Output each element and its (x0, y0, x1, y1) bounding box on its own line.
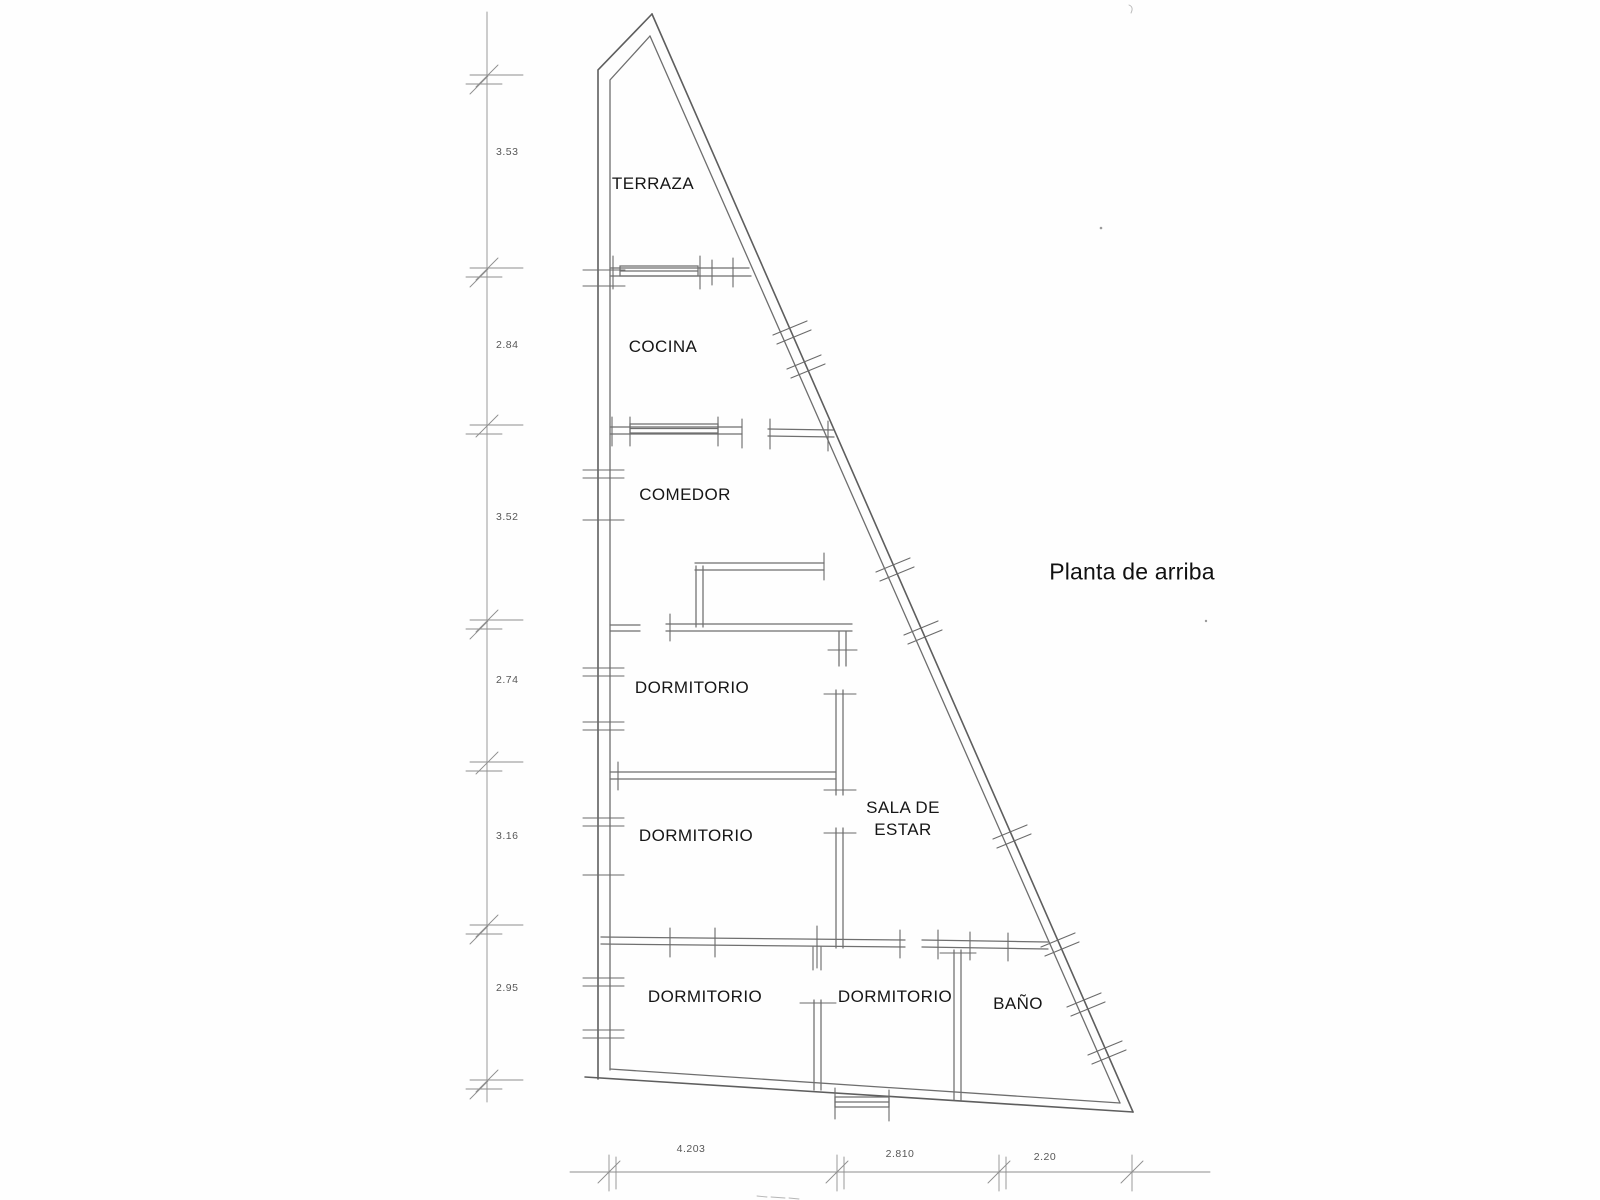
dimension-line-bottom (570, 1155, 1210, 1191)
dim-left-5: 3.16 (496, 830, 518, 842)
room-label-dormitorio-3: DORMITORIO (648, 987, 762, 1007)
room-label-dormitorio-4: DORMITORIO (838, 987, 952, 1007)
dim-left-4: 2.74 (496, 674, 518, 686)
plan-title: Planta de arriba (1049, 559, 1215, 586)
scan-artifacts (757, 5, 1207, 1199)
room-label-comedor: COMEDOR (639, 485, 731, 505)
floor-plan-drawing (0, 0, 1600, 1200)
room-label-cocina: COCINA (629, 337, 698, 357)
room-label-bano: BAÑO (993, 994, 1043, 1014)
dim-bottom-1: 4.203 (677, 1143, 706, 1155)
room-label-sala-de-estar: SALA DE ESTAR (847, 797, 959, 841)
dim-bottom-2: 2.810 (886, 1148, 915, 1160)
room-label-dormitorio-2: DORMITORIO (639, 826, 753, 846)
floor-plan-page: TERRAZA COCINA COMEDOR DORMITORIO SALA D… (0, 0, 1600, 1200)
dim-left-3: 3.52 (496, 511, 518, 523)
dimension-line-left (466, 12, 523, 1102)
room-label-dormitorio-1: DORMITORIO (635, 678, 749, 698)
dim-bottom-3: 2.20 (1034, 1151, 1056, 1163)
dim-left-1: 3.53 (496, 146, 518, 158)
room-label-terraza: TERRAZA (612, 174, 694, 194)
dim-left-2: 2.84 (496, 339, 518, 351)
dim-left-6: 2.95 (496, 982, 518, 994)
